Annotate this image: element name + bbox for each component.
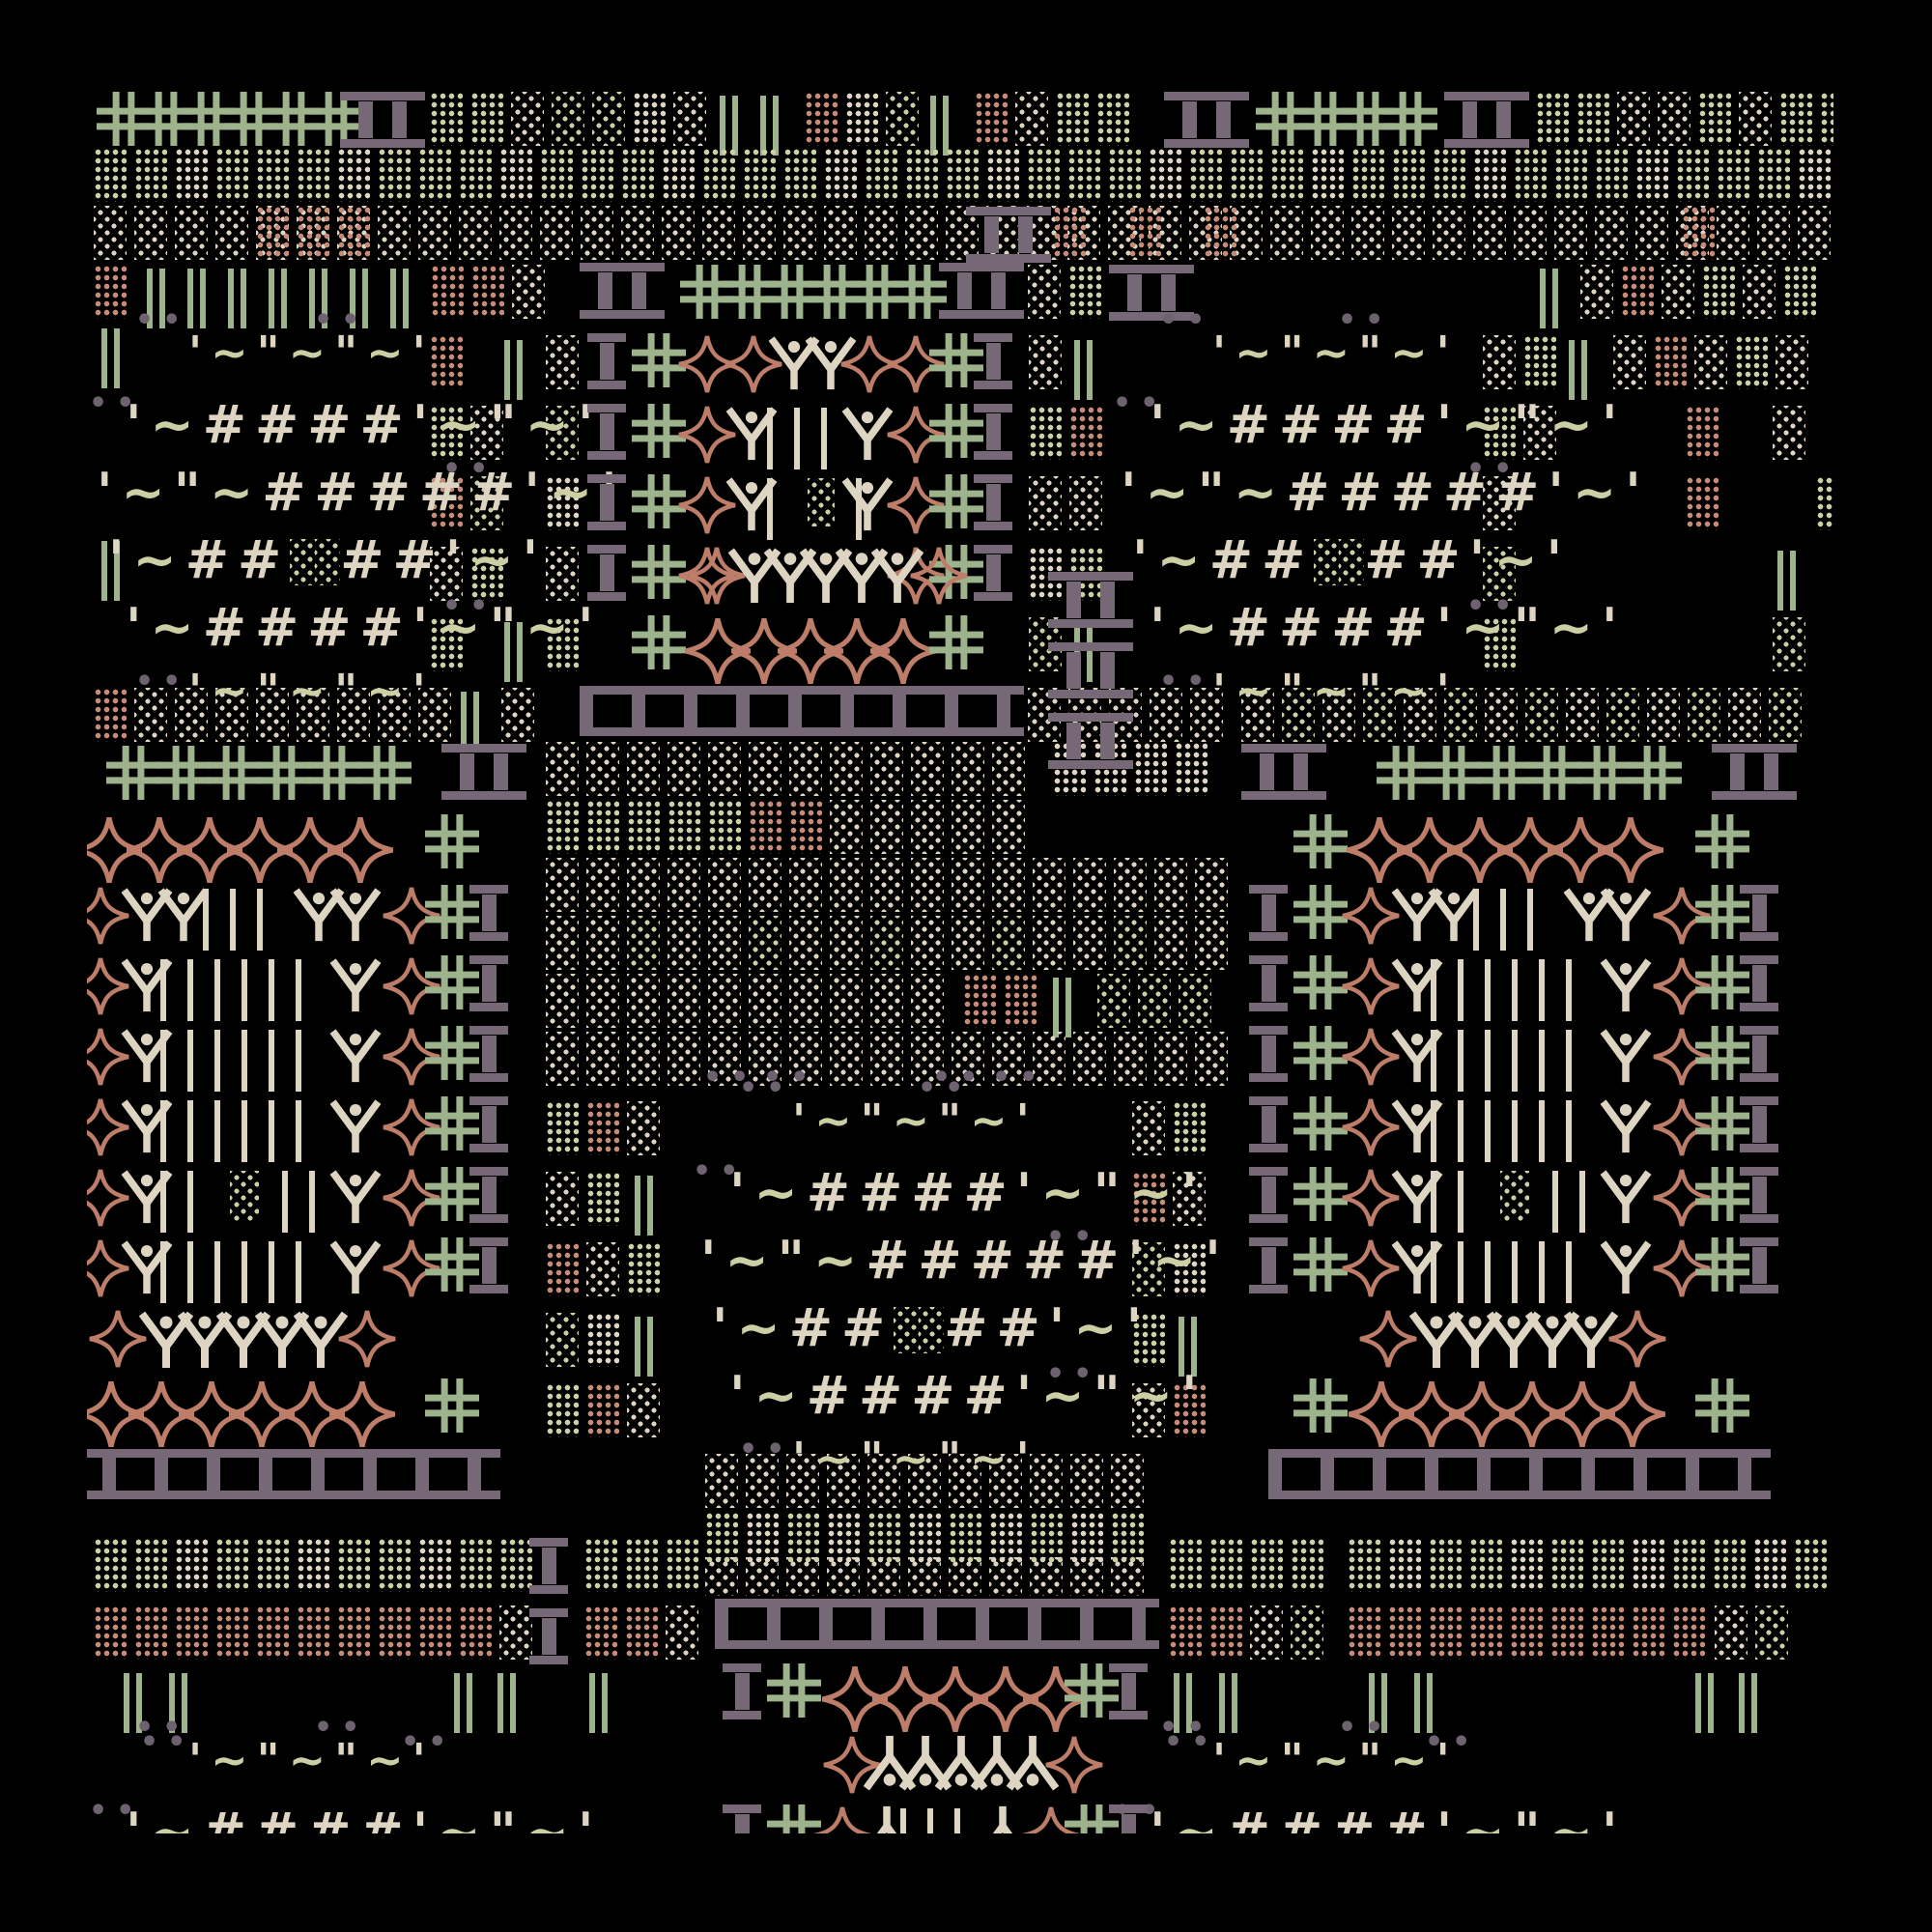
dot-block <box>625 1538 658 1592</box>
dot-block <box>1688 688 1720 742</box>
mini-dot-block <box>894 1307 919 1353</box>
pattern-glyphs: ' <box>1212 665 1235 717</box>
dot-block <box>94 148 127 202</box>
serif-i-glyph <box>469 1167 508 1223</box>
dot-block <box>1595 206 1628 260</box>
dot-block <box>1682 206 1715 260</box>
y-dot-glyph-icon <box>327 1026 384 1084</box>
dot-pair: •• <box>739 1433 793 1466</box>
dot-block <box>749 916 781 970</box>
dot-block <box>1392 148 1425 202</box>
cross-icon <box>106 746 160 800</box>
mini-dot-block <box>315 539 340 585</box>
pattern-glyphs: ' <box>1625 462 1650 523</box>
double-bar-icon <box>1414 1673 1434 1733</box>
i-stem <box>1262 1177 1276 1213</box>
i-stem <box>1100 723 1115 759</box>
double-bar-icon <box>454 1673 473 1733</box>
dot-block <box>499 206 532 260</box>
pattern-text-line: '~"~"~' <box>188 665 435 717</box>
dot-block <box>1662 265 1694 319</box>
serif-i-glyph <box>469 1096 508 1152</box>
pattern-text-line: '~####'~"~' <box>1150 597 1627 658</box>
pattern-glyphs: ~ <box>1390 327 1436 379</box>
cross-icon <box>1527 746 1581 800</box>
dot-block <box>1070 1454 1103 1508</box>
dot-block <box>1114 858 1147 912</box>
serif-i-glyph <box>1444 92 1529 148</box>
dot-block <box>1388 1538 1421 1592</box>
dot-block <box>1128 206 1161 260</box>
dot-block <box>1621 265 1654 319</box>
dot-block <box>1469 1538 1502 1592</box>
star-icon <box>1595 814 1666 886</box>
dot-block <box>1111 1454 1144 1508</box>
dot-block <box>1209 1538 1242 1592</box>
dot-block <box>824 206 857 260</box>
pattern-glyphs: #### <box>807 1365 1016 1426</box>
bar-glyphs <box>160 959 301 1021</box>
serif-i-glyph <box>587 404 626 460</box>
dot-block <box>783 206 816 260</box>
dot-block <box>1154 916 1187 970</box>
dot-block <box>337 148 370 202</box>
i-stem <box>392 101 407 138</box>
dot-block <box>586 974 619 1028</box>
dot-block <box>552 92 584 146</box>
pattern-glyphs: ~ <box>1573 462 1625 523</box>
pattern-glyphs: ## <box>340 529 445 590</box>
dot-block <box>870 1032 903 1086</box>
dot-block <box>746 1557 779 1596</box>
i-stem <box>735 1673 750 1710</box>
dot-block <box>668 974 700 1028</box>
pattern-glyphs: ' <box>1127 1230 1152 1291</box>
cross-icon <box>1695 1378 1749 1433</box>
dot-block <box>215 206 248 260</box>
dot-pair: •• <box>89 1794 143 1828</box>
pattern-glyphs: ' <box>1121 462 1146 523</box>
serif-i-glyph <box>1249 1167 1288 1223</box>
pattern-glyphs: ~ <box>814 1433 861 1485</box>
dot-block <box>1348 1538 1380 1592</box>
pattern-glyphs: ' <box>524 462 549 523</box>
mini-dot-block <box>919 1307 944 1353</box>
i-stem <box>1262 1247 1276 1284</box>
dot-block <box>1776 335 1808 389</box>
double-bar-icon <box>390 269 410 328</box>
dot-block <box>1514 206 1547 260</box>
pattern-glyphs: " <box>1514 394 1549 455</box>
dot-block <box>1028 265 1061 319</box>
dot-block <box>1672 1538 1705 1592</box>
dot-block <box>1348 1605 1380 1660</box>
dot-pair: •• <box>739 1071 793 1105</box>
i-stem <box>1182 101 1197 138</box>
dot-block <box>337 1605 370 1660</box>
pattern-text-line: '~####'~' <box>108 529 547 590</box>
dot-block <box>546 335 579 389</box>
dot-block <box>911 800 944 854</box>
double-bar-icon <box>1053 978 1072 1037</box>
dot-block <box>378 1605 411 1660</box>
dot-block <box>459 1538 492 1592</box>
dot-block <box>418 206 451 260</box>
dot-block <box>824 148 857 202</box>
serif-i-glyph <box>1048 713 1133 769</box>
dot-block <box>749 742 781 796</box>
dot-block <box>1773 406 1805 460</box>
pattern-glyphs: ' <box>188 665 211 717</box>
dot-block <box>1070 1557 1103 1596</box>
dot-block <box>1195 1032 1228 1086</box>
dot-block <box>908 1557 941 1596</box>
dot-block <box>1134 742 1167 796</box>
serif-i-glyph <box>529 1538 568 1594</box>
dot-block <box>215 1605 248 1660</box>
dot-block <box>975 92 1008 146</box>
dot-block <box>963 974 996 1028</box>
dot-block <box>586 1172 619 1226</box>
serif-i-glyph <box>1249 1026 1288 1082</box>
dot-block <box>1004 974 1037 1028</box>
cross-icon <box>1427 746 1481 800</box>
dot-block <box>749 858 781 912</box>
pattern-glyphs: ' <box>1016 1162 1041 1223</box>
dot-block <box>1500 1171 1529 1221</box>
pattern-glyphs: " <box>861 1094 893 1147</box>
dot-block <box>1250 1605 1283 1660</box>
dot-block <box>708 974 741 1028</box>
serif-i-glyph <box>1740 1167 1778 1223</box>
pattern-glyphs: ~ <box>133 529 185 590</box>
pattern-glyphs: ' <box>792 1433 814 1485</box>
y-dot-glyph-icon <box>327 885 384 943</box>
serif-i-glyph <box>974 333 1012 389</box>
dot-block <box>1029 335 1062 389</box>
dot-block <box>1676 148 1709 202</box>
dot-block <box>666 1605 698 1660</box>
pattern-glyphs: ~ <box>893 1433 939 1485</box>
dot-block <box>1647 688 1680 742</box>
dot-block <box>215 148 248 202</box>
dot-block <box>708 742 741 796</box>
dot-block <box>1550 1538 1583 1592</box>
pattern-glyphs: ' <box>412 394 438 455</box>
dot-block <box>546 1242 579 1296</box>
cross-icon <box>156 746 211 800</box>
pattern-text-line: '~####'~"~' <box>1150 394 1627 455</box>
dot-block <box>546 800 579 854</box>
i-stem <box>482 965 497 1002</box>
i-stem <box>482 1177 497 1213</box>
bar-glyphs <box>160 1030 301 1092</box>
pattern-glyphs: ~ <box>366 1734 412 1786</box>
dot-block <box>586 800 619 854</box>
pattern-glyphs: ~ <box>437 394 489 455</box>
bar-glyphs <box>1431 1030 1572 1092</box>
bar-glyphs <box>767 478 773 540</box>
dot-block <box>905 148 938 202</box>
pattern-glyphs: ## <box>1364 529 1469 590</box>
dot-block <box>1635 206 1668 260</box>
dot-block <box>992 916 1025 970</box>
pattern-glyphs: ## <box>185 529 291 590</box>
i-stem <box>1496 101 1511 138</box>
star-icon <box>867 615 939 687</box>
dot-block <box>1351 148 1384 202</box>
i-stem <box>600 343 614 380</box>
y-dot-glyph-icon <box>1597 955 1655 1013</box>
pattern-glyphs: ' <box>1212 327 1235 379</box>
i-stem <box>1764 753 1778 790</box>
dot-block <box>1686 406 1719 460</box>
dot-block <box>1429 1605 1462 1660</box>
pattern-glyphs: ' <box>445 529 470 590</box>
y-dot-glyph-icon <box>1597 1167 1655 1225</box>
dot-block <box>1798 148 1831 202</box>
dot-block <box>94 688 127 742</box>
dot-block <box>581 206 613 260</box>
dot-block <box>1015 92 1048 146</box>
pattern-glyphs: ~ <box>754 1162 807 1223</box>
i-stem <box>986 413 1001 450</box>
serif-i-glyph <box>974 404 1012 460</box>
dot-block <box>830 916 863 970</box>
pattern-glyphs: ' <box>97 462 122 523</box>
dot-block <box>418 148 451 202</box>
dot-block <box>1686 476 1719 530</box>
serif-i-glyph <box>587 545 626 601</box>
pattern-glyphs: " <box>174 462 210 523</box>
pattern-glyphs: " <box>938 1433 970 1485</box>
pattern-glyphs: ~ <box>1129 1162 1181 1223</box>
dot-block <box>1717 148 1749 202</box>
serif-i-glyph <box>974 545 1012 601</box>
dot-block <box>1779 92 1812 146</box>
pattern-glyphs: ~ <box>1235 665 1281 717</box>
dot-block <box>459 206 492 260</box>
dot-block <box>546 547 579 601</box>
dot-block <box>789 800 822 854</box>
y-dot-glyph-icon <box>838 474 896 532</box>
pattern-glyphs: ' <box>412 327 435 379</box>
pattern-glyphs: ~ <box>526 394 578 455</box>
double-bar-icon <box>720 96 739 156</box>
bar-glyphs <box>1431 959 1572 1021</box>
serif-i-band <box>1268 1449 1771 1499</box>
dot-block <box>789 858 822 912</box>
serif-i-glyph <box>1048 572 1133 628</box>
i-stem <box>957 272 972 309</box>
dot-block <box>911 742 944 796</box>
dot-block <box>1073 1032 1106 1086</box>
dot-block <box>1097 974 1130 1028</box>
pattern-glyphs: ~ <box>970 1433 1016 1485</box>
cross-icon <box>1383 92 1437 146</box>
dot-pair: •• <box>1159 1711 1213 1745</box>
pattern-glyphs: ## <box>944 1297 1049 1358</box>
dot-block <box>546 916 579 970</box>
dot-block <box>1757 206 1790 260</box>
i-stem <box>986 484 1001 521</box>
dot-block <box>1027 148 1060 202</box>
pattern-glyphs: " <box>257 665 289 717</box>
dot-block <box>1429 1538 1462 1592</box>
bar-glyphs <box>1431 1241 1572 1303</box>
cross-icon <box>1477 746 1531 800</box>
dot-pair: •• <box>1046 1357 1100 1391</box>
star-icon <box>908 545 970 607</box>
dot-block <box>1739 92 1772 146</box>
pattern-glyphs: " <box>1281 327 1313 379</box>
dot-block <box>992 858 1025 912</box>
bar-glyphs <box>767 408 827 469</box>
dot-block <box>1672 1605 1705 1660</box>
pattern-glyphs: ' <box>1436 597 1462 658</box>
margin-left <box>0 0 87 1932</box>
y-dot-glyph-icon <box>1597 1026 1655 1084</box>
double-bar-icon <box>461 692 480 752</box>
dot-block <box>1554 206 1587 260</box>
i-stem <box>1216 101 1231 138</box>
dot-block <box>789 974 822 1028</box>
dot-block <box>789 916 822 970</box>
pattern-glyphs: ~ <box>725 1230 778 1291</box>
dot-pair: •• <box>135 303 189 337</box>
dot-block <box>1743 265 1776 319</box>
dot-block <box>1550 1605 1583 1660</box>
pattern-glyphs: ' <box>1469 529 1494 590</box>
dot-block <box>1053 206 1086 260</box>
generative-ascii-quilt: ••••••••••••••••'~"~"~''~####'~"~''~"~##… <box>0 0 1932 1932</box>
dot-block <box>1658 92 1690 146</box>
dot-block <box>1483 335 1516 389</box>
dot-block <box>986 148 1019 202</box>
i-stem <box>1752 1036 1767 1072</box>
pattern-text-line: '~"~#####'~' <box>1121 462 1650 523</box>
bar-glyphs <box>160 1241 301 1303</box>
dot-block <box>952 858 984 912</box>
pattern-glyphs: ' <box>1181 1162 1207 1223</box>
pattern-text-line: '~"~"~' <box>792 1433 1038 1485</box>
dot-block <box>1068 265 1101 319</box>
dot-pair: •• <box>89 386 143 420</box>
pattern-text-line: '~"~"~' <box>1212 1734 1459 1786</box>
pattern-glyphs: ~ <box>970 1094 1016 1147</box>
cross-icon <box>1293 814 1348 868</box>
dot-pair: •• <box>1466 452 1520 486</box>
serif-i-glyph <box>723 1663 761 1719</box>
y-dot-glyph-icon <box>327 955 384 1013</box>
dot-block <box>830 1032 863 1086</box>
pattern-glyphs: ' <box>188 327 211 379</box>
serif-i-glyph <box>1249 1237 1288 1293</box>
y-dot-glyph-icon <box>838 404 896 462</box>
dot-block <box>1311 206 1344 260</box>
dot-block <box>1469 1605 1502 1660</box>
dot-block <box>911 916 944 970</box>
dot-block <box>627 800 660 854</box>
pattern-text-line: '~####'~"~' <box>126 597 603 658</box>
pattern-glyphs: ~ <box>1157 529 1209 590</box>
quilt-canvas: ••••••••••••••••'~"~"~''~####'~"~''~"~##… <box>0 0 1932 1932</box>
dot-block <box>1250 1538 1283 1592</box>
double-bar-icon <box>269 269 288 328</box>
margin-top <box>0 0 1932 87</box>
dot-block <box>1717 206 1749 260</box>
dot-block <box>1728 688 1761 742</box>
dot-block <box>1473 148 1506 202</box>
cross-icon <box>1695 814 1749 868</box>
dot-block <box>540 206 573 260</box>
serif-i-glyph <box>1740 1096 1778 1152</box>
bar-glyphs <box>1552 1171 1585 1233</box>
dot-block <box>1580 265 1613 319</box>
double-bar-icon <box>101 328 121 388</box>
pattern-glyphs: ' <box>1205 1230 1230 1291</box>
dot-block <box>418 1605 451 1660</box>
pattern-glyphs: ## <box>1209 529 1315 590</box>
dot-block <box>546 1313 579 1367</box>
i-stem <box>1730 753 1745 790</box>
dot-block <box>1096 92 1129 146</box>
dot-block <box>870 916 903 970</box>
dot-block <box>1114 916 1147 970</box>
pattern-glyphs: ~ <box>289 665 335 717</box>
pattern-glyphs: ~ <box>1146 462 1198 523</box>
pattern-glyphs: ' <box>188 1734 211 1786</box>
pattern-glyphs: ~ <box>1175 394 1227 455</box>
y-dot-glyph-icon <box>1597 1096 1655 1154</box>
dot-block <box>627 1101 660 1155</box>
dot-pair: •• <box>1159 665 1213 698</box>
dot-block <box>94 265 127 319</box>
pattern-glyphs: ~ <box>151 394 203 455</box>
pattern-glyphs: ' <box>1436 665 1459 717</box>
dot-block <box>1632 1605 1664 1660</box>
dot-block <box>1351 206 1384 260</box>
dot-block <box>1154 1032 1187 1086</box>
dot-block <box>584 1538 617 1592</box>
i-stem <box>986 343 1001 380</box>
dot-block <box>1108 148 1141 202</box>
double-bar-icon <box>1777 551 1797 611</box>
dot-block <box>1154 858 1187 912</box>
dot-block <box>992 800 1025 854</box>
dot-block <box>1204 206 1236 260</box>
dot-block <box>1033 858 1065 912</box>
pattern-glyphs: ' <box>1132 529 1157 590</box>
dot-block <box>297 1538 329 1592</box>
dot-block <box>1510 1605 1543 1660</box>
pattern-text-line: '~"~"~' <box>188 1734 435 1786</box>
dot-block <box>621 206 654 260</box>
serif-i-glyph <box>1241 744 1326 800</box>
bar-glyphs <box>282 1171 315 1233</box>
dot-block <box>1773 617 1805 671</box>
dot-pair: •• <box>135 1711 189 1745</box>
pattern-glyphs: " <box>1358 665 1390 717</box>
cross-icon <box>929 615 983 669</box>
dot-block <box>705 1454 738 1508</box>
dot-block <box>94 1538 127 1592</box>
i-stem <box>600 484 614 521</box>
pattern-glyphs: ~ <box>1390 665 1436 717</box>
star-icon <box>1606 1308 1668 1370</box>
pattern-glyphs: " <box>334 665 366 717</box>
dot-block <box>175 206 208 260</box>
